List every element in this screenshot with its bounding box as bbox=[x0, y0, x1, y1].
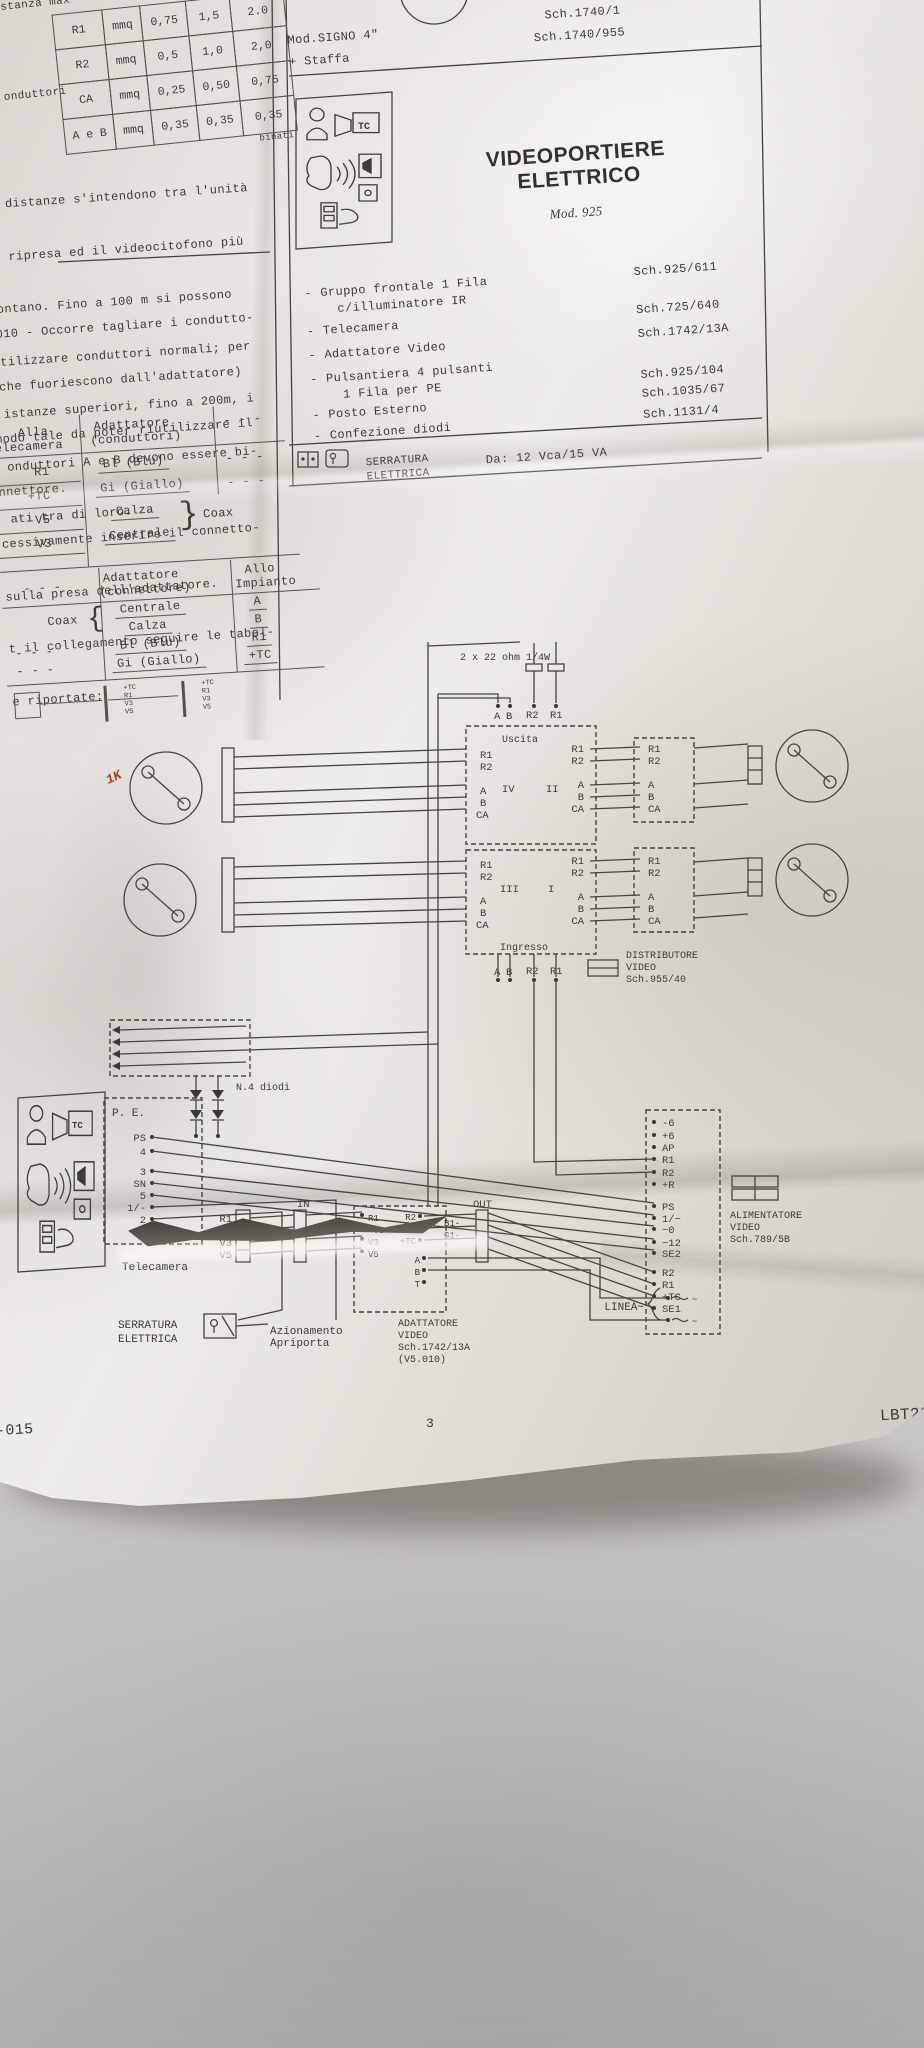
dash-cell: - - - bbox=[223, 412, 262, 428]
tc-icon: TC bbox=[72, 1121, 83, 1131]
linea-label: LINEA~ bbox=[604, 1302, 644, 1314]
cell: A e B bbox=[62, 114, 117, 155]
bullet: - bbox=[308, 348, 317, 362]
psu-pin: R2 bbox=[662, 1268, 675, 1280]
kit-panel: Mod.SIGNO 4" + Staffa Sch.1740/1 Sch.174… bbox=[270, 0, 790, 516]
pe-pin: 3 bbox=[140, 1167, 146, 1179]
kit-item-sch: Sch.1035/67 bbox=[641, 381, 725, 401]
pin-label: R2 bbox=[648, 756, 661, 768]
psu-pin: +6 bbox=[662, 1131, 675, 1143]
camera-label: Telecamera bbox=[122, 1262, 188, 1274]
note-line: i ripresa ed il videocitofono più bbox=[0, 230, 293, 267]
lock-rating: Da: 12 Vca/15 VA bbox=[485, 445, 607, 467]
psu-pin: AP bbox=[662, 1143, 675, 1155]
cell: mmq bbox=[105, 40, 148, 80]
adapter-version: (V5.010) bbox=[398, 1354, 446, 1366]
psu-pin: PS bbox=[662, 1202, 675, 1214]
paper-sheet: TC TC bbox=[0, 0, 924, 1555]
pin-label: B bbox=[648, 792, 654, 804]
kit-item: Posto Esterno bbox=[328, 401, 428, 422]
pin-label: R2 bbox=[648, 868, 661, 880]
coax-brace: { bbox=[86, 604, 105, 636]
monitor-symbol bbox=[14, 692, 42, 720]
adapter-pin: B bbox=[415, 1268, 421, 1278]
monitor-sch: Sch.1740/1 bbox=[544, 4, 621, 23]
monitor-model: Mod.SIGNO 4" bbox=[287, 28, 379, 48]
diodes-label: N.4 diodi bbox=[236, 1082, 290, 1094]
pin-label: B bbox=[480, 908, 486, 920]
unit-label: IV bbox=[502, 784, 515, 796]
ingresso-label: Ingresso bbox=[500, 943, 548, 954]
note-line: .010 - Occorre tagliare i condutto- bbox=[0, 307, 288, 344]
unit-label: III bbox=[500, 884, 519, 896]
psu-pin: R1 bbox=[662, 1280, 675, 1292]
kit-item-sch: Sch.1742/13A bbox=[637, 321, 729, 341]
pin-label: CA bbox=[476, 810, 489, 822]
kit-item-sch: Sch.725/640 bbox=[636, 298, 720, 318]
psu-pin: R2 bbox=[662, 1168, 675, 1180]
bus-pin: B bbox=[506, 711, 512, 723]
pe-pin: 1/- bbox=[127, 1203, 146, 1215]
row-cell: Bl (Blu) bbox=[97, 453, 169, 473]
cell: 0,35 bbox=[150, 105, 201, 146]
bullet: - bbox=[312, 408, 321, 422]
adapter-pin: A bbox=[415, 1256, 421, 1266]
psu-pin: +R bbox=[662, 1180, 675, 1192]
lock-label: ELETTRICA bbox=[366, 467, 430, 483]
intercom-pictogram-bottom bbox=[18, 1092, 105, 1272]
camera-adapter-tables: Alla elecamera Adattatore (conduttori) -… bbox=[0, 388, 334, 737]
mini-pin: V5 bbox=[203, 703, 212, 711]
bus-pin: B bbox=[506, 967, 512, 979]
row-cell: B bbox=[249, 612, 268, 629]
psu-pin: +TC bbox=[662, 1292, 681, 1304]
pin-label: CA bbox=[648, 804, 661, 816]
row-cell: +TC bbox=[243, 647, 277, 665]
connector-bar bbox=[103, 686, 108, 722]
unit-label: I bbox=[548, 884, 554, 896]
row-cell: Centrale bbox=[104, 525, 176, 545]
pin-label: B bbox=[648, 904, 654, 916]
row-cell: Gi (Giallo) bbox=[112, 652, 206, 674]
out-label: OUT bbox=[473, 1199, 492, 1211]
header-cell: elecamera bbox=[0, 438, 63, 456]
kit-item: 1 Fila per PE bbox=[343, 381, 443, 402]
psu-sch: Sch.789/5B bbox=[730, 1234, 790, 1246]
pin-label: R2 bbox=[571, 868, 584, 880]
pin-label: CA bbox=[648, 916, 661, 928]
kit-item: Pulsantiera 4 pulsanti bbox=[326, 361, 494, 386]
bus-pin: R2 bbox=[526, 710, 539, 722]
release-label: Azionamento bbox=[270, 1326, 343, 1338]
resistor-label: 2 x 22 ohm 1/4W bbox=[460, 652, 550, 664]
pin-label: B bbox=[480, 798, 486, 810]
adapter-sch: Sch.1742/13A bbox=[398, 1342, 470, 1354]
psu-pin: SE2 bbox=[662, 1249, 681, 1261]
psu-label: VIDEO bbox=[730, 1223, 760, 1234]
uscita-label: Uscita bbox=[502, 734, 538, 746]
pin-label: B bbox=[578, 792, 584, 804]
dash-cell: - - - bbox=[227, 474, 266, 490]
cell: mmq bbox=[108, 75, 151, 115]
pin-label: R2 bbox=[480, 872, 493, 884]
pin-label: R1 bbox=[571, 744, 584, 756]
kit-item-sch: Sch.925/104 bbox=[640, 362, 724, 382]
bus-pin: R1 bbox=[550, 966, 563, 978]
kit-item: Confezione diodi bbox=[329, 421, 451, 443]
release-label: Apriporta bbox=[270, 1338, 330, 1350]
dash-cell: - - - bbox=[225, 450, 264, 466]
row-cell: V3 bbox=[36, 537, 52, 552]
pe-pin: 4 bbox=[140, 1147, 146, 1159]
coax-brace: } bbox=[178, 496, 200, 534]
pe-pin: SN bbox=[133, 1179, 146, 1191]
cell: 0,35 bbox=[196, 100, 245, 141]
page-number: 3 bbox=[426, 1416, 434, 1431]
psu-label: ALIMENTATORE bbox=[730, 1211, 802, 1222]
bullet: - bbox=[313, 429, 322, 443]
pin-label: R1 bbox=[480, 860, 493, 872]
row-cell: R1 bbox=[246, 629, 272, 647]
header-cell: Impianto bbox=[235, 574, 297, 592]
pin-label: A bbox=[578, 780, 585, 792]
kit-item-sch: Sch.1131/4 bbox=[643, 403, 720, 422]
pin-label: CA bbox=[571, 804, 584, 816]
adapter-label: VIDEO bbox=[398, 1331, 428, 1342]
connector-bar bbox=[181, 681, 186, 717]
pin-label: A bbox=[578, 892, 585, 904]
pe-label: P. E. bbox=[112, 1108, 145, 1120]
pin-label: A bbox=[480, 786, 487, 798]
linea-pin: ~ bbox=[692, 1317, 697, 1327]
monitor-bracket: + Staffa bbox=[289, 52, 351, 70]
table-corner-label: stanza max bbox=[0, 0, 71, 14]
row-cell: Bl (Blu) bbox=[115, 635, 187, 655]
bullet: - bbox=[304, 287, 313, 301]
row-cell: +TC bbox=[27, 489, 51, 504]
pin-label: R2 bbox=[480, 762, 493, 774]
bus-pin: A bbox=[494, 967, 501, 979]
pin-label: R1 bbox=[648, 744, 661, 756]
dash-cell: - - - bbox=[23, 580, 62, 596]
row-cell: R1 bbox=[34, 465, 50, 480]
pin-label: A bbox=[648, 892, 655, 904]
model-number: Mod. 925 bbox=[549, 203, 603, 222]
bullet: - bbox=[306, 324, 315, 338]
row-cell: Gi (Giallo) bbox=[95, 476, 189, 498]
lock-label: SERRATURA bbox=[118, 1320, 178, 1332]
pin-label: R1 bbox=[480, 750, 493, 762]
row-cell: Centrale bbox=[114, 599, 186, 619]
bracket-sch: Sch.1740/955 bbox=[534, 25, 626, 45]
pin-label: A bbox=[648, 780, 655, 792]
bus-pin: R2 bbox=[526, 966, 539, 978]
row-cell: A bbox=[248, 594, 267, 611]
note-line: e distanze s'intendono tra l'unità bbox=[0, 177, 290, 214]
cell: mmq bbox=[112, 110, 155, 150]
pin-label: R1 bbox=[648, 856, 661, 868]
adapter-pin: R1 bbox=[368, 1214, 379, 1224]
coax-label: Coax bbox=[203, 506, 234, 522]
psu-pin: ~0 bbox=[662, 1225, 675, 1237]
adapter-pin: R2 bbox=[405, 1213, 416, 1223]
distributor-label: VIDEO bbox=[626, 963, 656, 974]
pin-label: B bbox=[578, 904, 584, 916]
pe-pin: PS bbox=[133, 1133, 146, 1145]
kit-item: Adattatore Video bbox=[324, 340, 446, 362]
adapter-label: ADATTATORE bbox=[398, 1319, 458, 1330]
pin-label: CA bbox=[476, 920, 489, 932]
distributor-label: DISTRIBUTORE bbox=[626, 951, 698, 962]
in-label: IN bbox=[297, 1199, 310, 1211]
psu-pin: SE1 bbox=[662, 1304, 681, 1316]
footer-code-right: LBT29 bbox=[880, 1405, 924, 1426]
dash-cell: - - - bbox=[15, 645, 54, 661]
kit-item-sch: Sch.925/611 bbox=[633, 260, 717, 280]
pin-label: A bbox=[480, 896, 487, 908]
cell: mmq bbox=[101, 5, 144, 45]
row-cell: V5 bbox=[35, 513, 51, 528]
footer-code-left: -015 bbox=[0, 1421, 34, 1440]
pin-label: R1 bbox=[571, 856, 584, 868]
kit-item: Telecamera bbox=[322, 319, 399, 338]
table-grid: R1mmq0,751,52.0 R2mmq0,51,02,0 CAmmq0,25… bbox=[51, 0, 296, 154]
adapter-pin: T bbox=[415, 1280, 421, 1290]
pin-label: R2 bbox=[571, 756, 584, 768]
pin-label: CA bbox=[571, 916, 584, 928]
psu-pin: -6 bbox=[662, 1118, 675, 1130]
lock-label: ELETTRICA bbox=[118, 1334, 178, 1346]
bus-pin: A bbox=[494, 711, 501, 723]
wire-label: B1- bbox=[444, 1219, 460, 1229]
bus-pin: R1 bbox=[550, 710, 563, 722]
mini-pin: V5 bbox=[125, 708, 134, 716]
unit-label: II bbox=[546, 784, 559, 796]
dash-cell: - - - bbox=[16, 663, 55, 679]
photo-background: TC TC bbox=[0, 0, 924, 2048]
linea-pin: ~ bbox=[692, 1295, 697, 1305]
row-cell: Calza bbox=[110, 502, 159, 521]
psu-pin: R1 bbox=[662, 1155, 675, 1167]
distributor-sch: Sch.955/40 bbox=[626, 974, 686, 986]
bullet: - bbox=[310, 372, 319, 386]
pe-pin: 5 bbox=[140, 1191, 146, 1203]
row-cell: Calza bbox=[123, 618, 172, 637]
coax-label: Coax bbox=[47, 613, 78, 629]
